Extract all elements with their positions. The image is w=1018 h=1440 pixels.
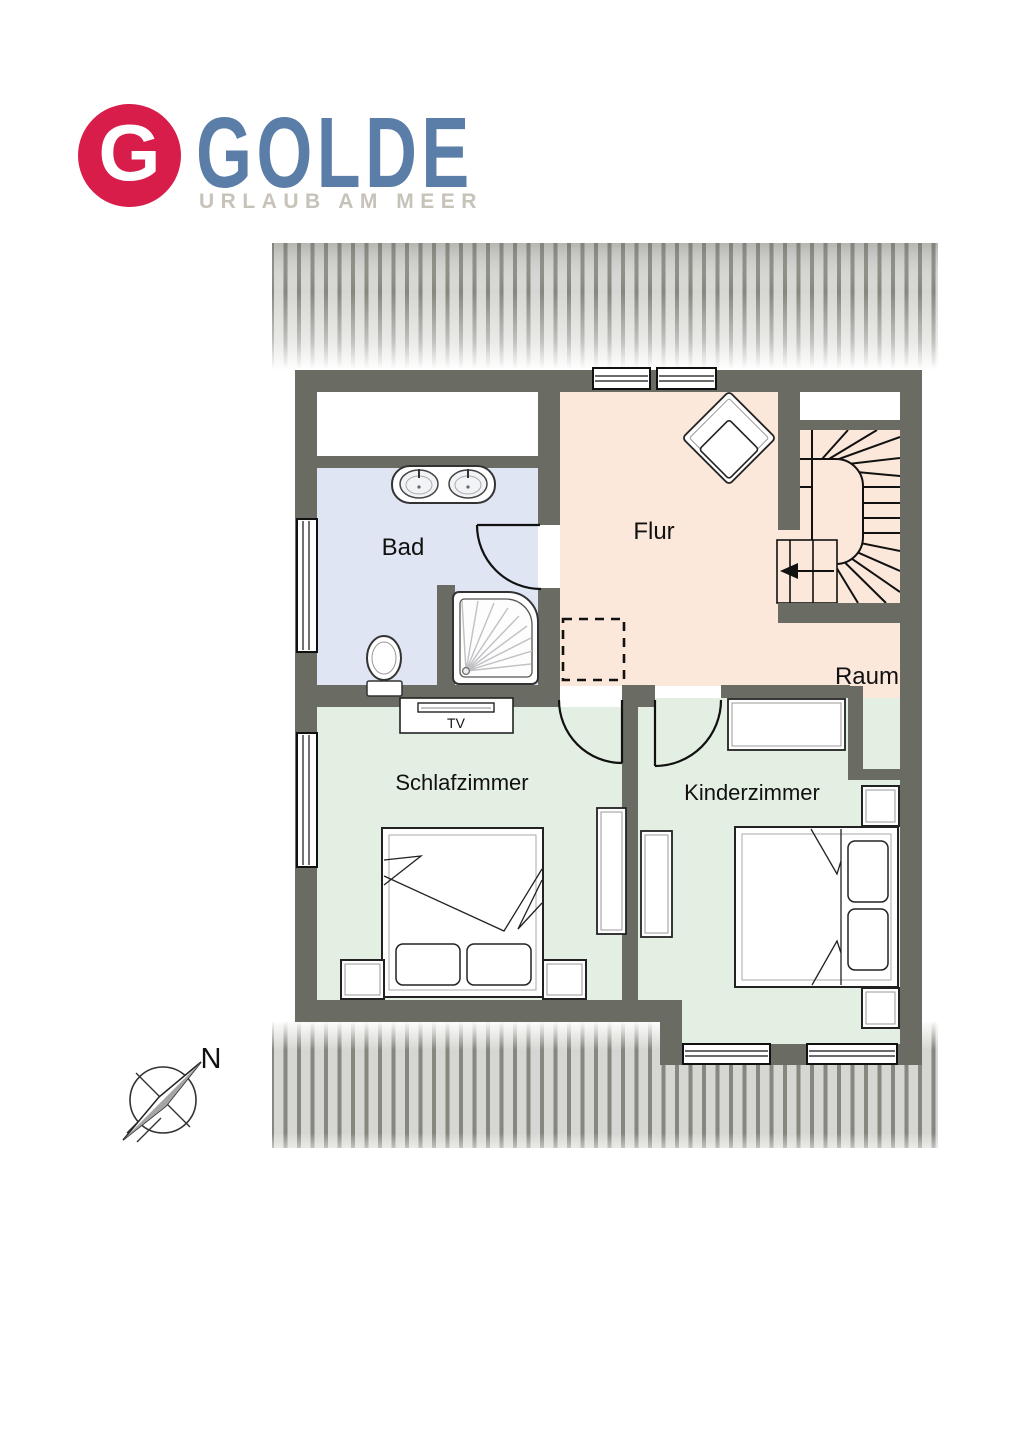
- wall-schlafzimmer-bottom: [295, 1000, 682, 1022]
- wall-raum-left: [848, 686, 863, 780]
- window-schlafzimmer-left: [297, 733, 317, 867]
- wall-bad-flur-upper: [538, 392, 560, 525]
- page: G GOLDE URLAUB AM MEER: [0, 0, 1018, 1440]
- pillow: [848, 909, 888, 970]
- label-kinderzimmer: Kinderzimmer: [684, 780, 820, 805]
- wall-kinderzimmer-top: [721, 685, 850, 698]
- double-bed-kinderzimmer: [735, 827, 898, 987]
- label-schlafzimmer: Schlafzimmer: [395, 770, 528, 795]
- nightstand: [543, 960, 586, 999]
- window-bad-left: [297, 519, 317, 652]
- double-bed-schlafzimmer: [382, 828, 543, 997]
- label-flur: Flur: [633, 518, 674, 545]
- nightstand: [341, 960, 384, 999]
- label-bad: Bad: [382, 534, 425, 561]
- double-sink-vanity: [392, 466, 495, 503]
- pillow: [467, 944, 531, 985]
- wall-stairs-top: [800, 420, 900, 430]
- window-dormer-1: [683, 1044, 770, 1064]
- compass-north-label: N: [201, 1043, 222, 1075]
- wall-stairs-left: [778, 392, 800, 530]
- wardrobe-kinderzimmer-top: [728, 699, 845, 750]
- toilet: [367, 636, 402, 696]
- wall-raum-bottom: [848, 769, 900, 780]
- wall-right: [900, 370, 922, 1065]
- nightstand: [862, 988, 899, 1028]
- bath-niche: [317, 392, 538, 456]
- window-dormer-2: [807, 1044, 897, 1064]
- nightstand: [862, 786, 899, 826]
- wall-stairs-bottom: [778, 603, 900, 623]
- stair-niche: [800, 392, 900, 420]
- label-tv: TV: [447, 715, 466, 731]
- wall-between-doors: [622, 685, 655, 707]
- compass-rose: N: [123, 1043, 221, 1142]
- floor-plan: Bad Flur Schlafzimmer Kinderzimmer Raum …: [0, 0, 1018, 1440]
- pillow: [848, 841, 888, 902]
- shower: [453, 592, 538, 684]
- wardrobe-schlafzimmer: [597, 808, 626, 934]
- pillow: [396, 944, 460, 985]
- roof-hatch-top: [272, 243, 938, 370]
- wardrobe-kinderzimmer-left: [641, 831, 672, 937]
- window-top-2: [657, 368, 716, 389]
- window-top-1: [593, 368, 650, 389]
- label-raum: Raum: [835, 663, 899, 690]
